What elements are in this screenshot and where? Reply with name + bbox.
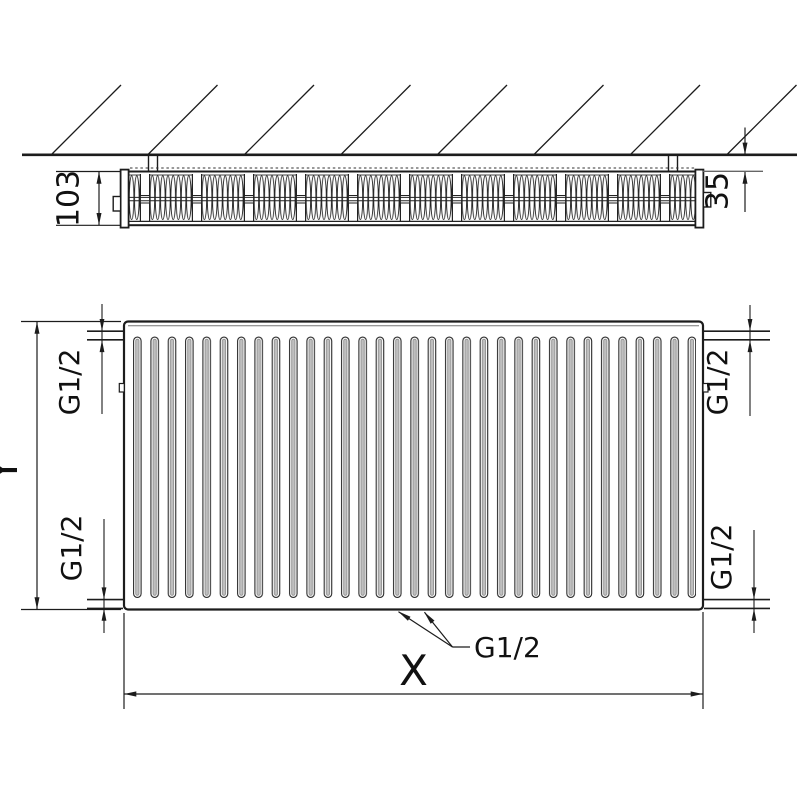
panel-fins bbox=[133, 337, 696, 599]
thread-label-top-right: G1/2 bbox=[701, 349, 734, 416]
arrow-up-icon bbox=[743, 172, 748, 184]
pipe-stub-bottom-left bbox=[87, 600, 123, 609]
arrow-up-icon bbox=[35, 322, 40, 334]
thread-label-bottom-right: G1/2 bbox=[705, 524, 738, 591]
arrow-down-icon bbox=[35, 597, 40, 609]
thread-dimension-top-right bbox=[748, 305, 753, 416]
arrow-right-icon bbox=[691, 691, 703, 696]
arrow-leader-icon bbox=[398, 611, 411, 621]
thread-label-bottom-center: G1/2 bbox=[474, 631, 541, 664]
end-cap-left bbox=[121, 170, 129, 228]
thread-label-bottom-left: G1/2 bbox=[55, 515, 88, 582]
thread-dimension-bottom-left bbox=[102, 519, 107, 633]
thread-leader bbox=[398, 611, 470, 647]
pipe-stub-top-left bbox=[87, 331, 123, 340]
front-view: Y X G1/2 G1/2 G1/2 bbox=[0, 304, 770, 709]
height-dimension-label: Y bbox=[0, 457, 27, 484]
arrow-down-icon bbox=[752, 587, 757, 599]
thread-label-top-left: G1/2 bbox=[53, 349, 86, 416]
end-plug-left bbox=[113, 197, 120, 212]
arrow-up-icon bbox=[97, 172, 102, 184]
arrow-up-icon bbox=[748, 340, 753, 352]
wall-gap-dimension-label: 35 bbox=[701, 172, 736, 210]
arrow-up-icon bbox=[102, 609, 107, 621]
mounting-bracket-left bbox=[149, 155, 158, 172]
mounting-bracket-right bbox=[669, 155, 678, 172]
arrow-down-icon bbox=[102, 587, 107, 599]
pipe-stub-top-right bbox=[704, 331, 770, 340]
arrow-down-icon bbox=[748, 319, 753, 331]
width-dimension-label: X bbox=[399, 646, 428, 695]
depth-dimension-label: 103 bbox=[52, 170, 87, 227]
arrow-down-icon bbox=[100, 319, 105, 331]
arrow-up-icon bbox=[100, 340, 105, 352]
thread-dimension-top-left bbox=[100, 304, 105, 414]
arrow-down-icon bbox=[97, 213, 102, 225]
top-view: 103 35 bbox=[22, 85, 797, 228]
arrow-left-icon bbox=[124, 691, 136, 696]
radiator-top-view bbox=[113, 168, 711, 228]
arrow-down-icon bbox=[743, 143, 748, 155]
thread-dimension-bottom-right bbox=[752, 530, 757, 633]
wall-hatching bbox=[51, 85, 797, 155]
technical-drawing-canvas: 103 35 bbox=[0, 0, 800, 800]
pipe-stub-bottom-right bbox=[704, 600, 770, 609]
side-tab-left bbox=[119, 384, 124, 393]
radiator-drawing: 103 35 bbox=[0, 0, 800, 800]
arrow-up-icon bbox=[752, 609, 757, 621]
